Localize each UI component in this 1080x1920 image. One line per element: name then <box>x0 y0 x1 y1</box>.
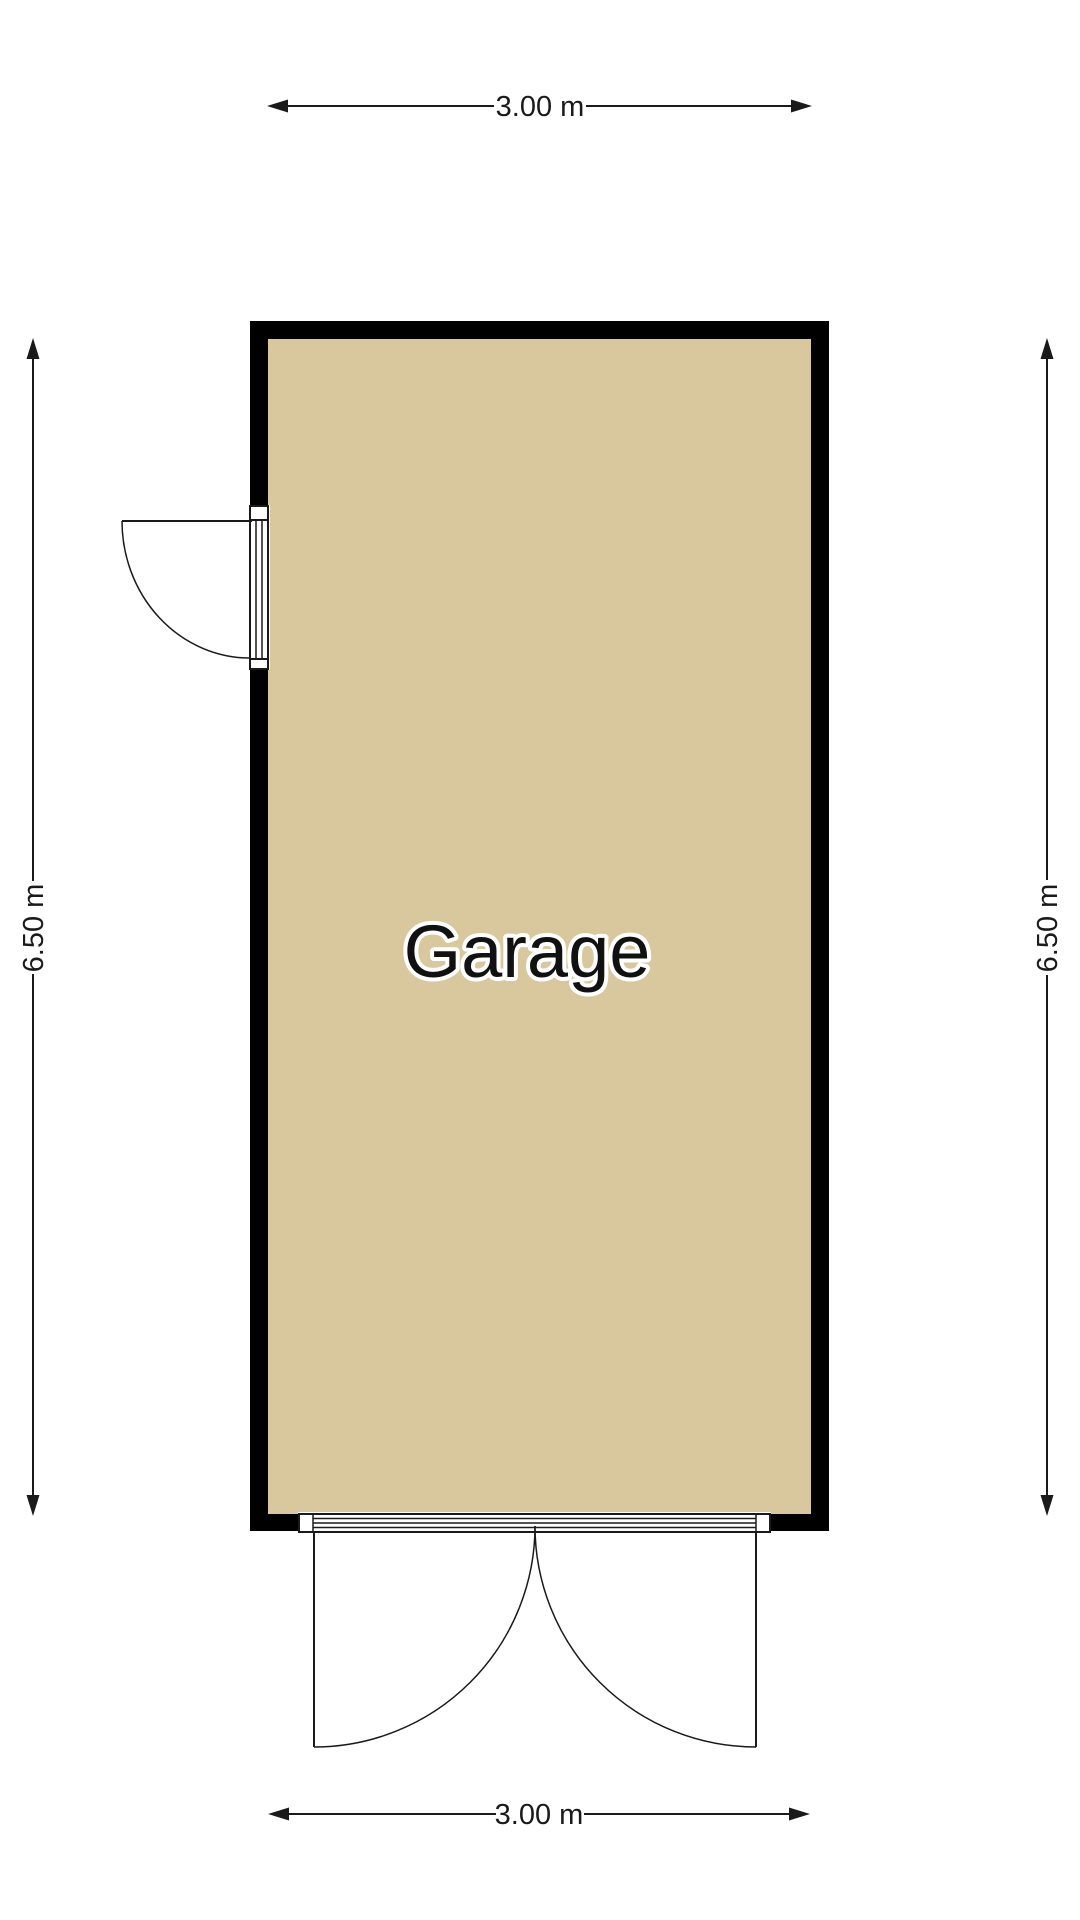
arrow-up-icon <box>1041 338 1054 359</box>
garage-door-swing-arc-right <box>535 1526 756 1747</box>
arrow-down-icon <box>1041 1495 1054 1516</box>
side-door-frame <box>250 520 268 659</box>
dimension-label-top: 3.00 m <box>496 91 585 123</box>
dimension-bottom: 3.00 m <box>268 1799 810 1831</box>
dimension-top: 3.00 m <box>267 91 812 123</box>
arrow-left-icon <box>267 100 288 113</box>
dimension-label-right: 6.50 m <box>1032 884 1064 973</box>
dimension-left: 6.50 m <box>18 338 50 1516</box>
garage-door-swing-arc-left <box>314 1526 535 1747</box>
dimension-right: 6.50 m <box>1032 338 1064 1516</box>
dimension-label-bottom: 3.00 m <box>495 1799 584 1831</box>
side-door-jamb-top <box>250 506 268 520</box>
arrow-down-icon <box>27 1495 40 1516</box>
side-door <box>122 505 270 670</box>
floorplan-page: 3.00 m 3.00 m 6.50 m 6.50 m Garage <box>0 0 1080 1920</box>
garage-door <box>298 1512 771 1747</box>
room-label: Garage <box>404 910 651 993</box>
floorplan-canvas: 3.00 m 3.00 m 6.50 m 6.50 m Garage <box>0 0 1080 1920</box>
arrow-left-icon <box>268 1808 289 1821</box>
arrow-up-icon <box>27 338 40 359</box>
arrow-right-icon <box>791 100 812 113</box>
side-door-swing-arc <box>122 521 250 658</box>
dimension-label-left: 6.50 m <box>18 884 50 973</box>
arrow-right-icon <box>789 1808 810 1821</box>
side-door-jamb-bottom <box>250 659 268 669</box>
